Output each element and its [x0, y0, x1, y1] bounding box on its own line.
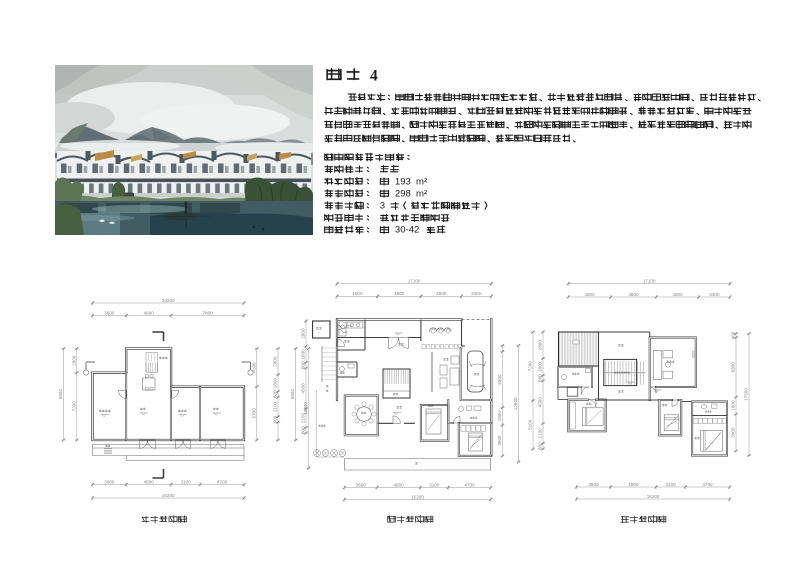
svg-text:600: 600: [273, 415, 278, 423]
svg-text:600: 600: [538, 442, 543, 450]
svg-text:6300: 6300: [497, 374, 502, 385]
svg-text:12800: 12800: [303, 402, 308, 415]
svg-text:9800: 9800: [58, 389, 63, 400]
svg-text:1800: 1800: [273, 378, 278, 389]
svg-text:2100: 2100: [538, 428, 543, 439]
svg-text:4500: 4500: [436, 291, 447, 296]
svg-text:4500: 4500: [352, 291, 363, 296]
svg-text:7800: 7800: [202, 310, 213, 315]
svg-text:4800: 4800: [144, 479, 155, 484]
svg-text:3100: 3100: [665, 482, 676, 487]
svg-text:17100: 17100: [408, 279, 421, 284]
svg-text:3600: 3600: [104, 310, 115, 315]
svg-text:4500: 4500: [301, 383, 306, 394]
svg-text:17100: 17100: [643, 279, 656, 284]
svg-text:1800: 1800: [731, 400, 736, 411]
svg-text:3600: 3600: [104, 479, 115, 484]
svg-text:3600: 3600: [356, 482, 367, 487]
svg-text:2100: 2100: [273, 401, 278, 412]
svg-text:5100: 5100: [528, 419, 533, 430]
svg-text:7200: 7200: [71, 401, 76, 412]
svg-text:17500: 17500: [744, 388, 749, 401]
svg-text:16200: 16200: [647, 494, 660, 499]
svg-text:3600: 3600: [588, 482, 599, 487]
svg-text:600: 600: [301, 426, 306, 434]
svg-text:600: 600: [273, 390, 278, 398]
svg-text:2600: 2600: [71, 355, 76, 366]
svg-text:4500: 4500: [538, 397, 543, 408]
svg-text:1800: 1800: [497, 411, 502, 422]
svg-text:4700: 4700: [217, 479, 228, 484]
svg-text:4500: 4500: [672, 292, 683, 297]
svg-text:3300: 3300: [709, 292, 720, 297]
svg-text:3100: 3100: [429, 482, 440, 487]
svg-text:4700: 4700: [464, 482, 475, 487]
svg-text:2800: 2800: [301, 328, 306, 339]
svg-text:2800: 2800: [273, 356, 278, 367]
svg-text:4800: 4800: [628, 292, 639, 297]
svg-text:4500: 4500: [584, 292, 595, 297]
svg-text:3300: 3300: [471, 291, 482, 296]
svg-text:5700: 5700: [251, 408, 256, 419]
svg-text:4: 4: [370, 68, 378, 85]
svg-text:1800: 1800: [301, 349, 306, 360]
svg-text:m²: m²: [416, 188, 427, 199]
svg-text:4800: 4800: [394, 291, 405, 296]
svg-text:298: 298: [395, 188, 411, 199]
svg-text:2100: 2100: [301, 413, 306, 424]
svg-text:16200: 16200: [162, 298, 175, 303]
svg-text:7200: 7200: [528, 361, 533, 372]
svg-text:3900: 3900: [497, 435, 502, 446]
svg-text:1800: 1800: [538, 361, 543, 372]
svg-text:30-42: 30-42: [395, 225, 419, 236]
svg-text:4700: 4700: [702, 482, 713, 487]
svg-text:16200: 16200: [162, 493, 175, 498]
svg-text:600: 600: [538, 374, 543, 382]
svg-text:m²: m²: [416, 176, 427, 187]
svg-text:193: 193: [395, 176, 411, 187]
svg-text:16200: 16200: [411, 494, 424, 499]
svg-text:12600: 12600: [513, 397, 518, 410]
svg-text:4800: 4800: [144, 310, 155, 315]
svg-text:4800: 4800: [628, 482, 639, 487]
svg-text:3: 3: [380, 201, 385, 212]
svg-text:9800: 9800: [290, 389, 295, 400]
svg-text:4100: 4100: [251, 362, 256, 373]
svg-text:600: 600: [301, 361, 306, 369]
svg-text:400: 400: [731, 331, 736, 339]
svg-text:3900: 3900: [731, 427, 736, 438]
svg-text:6300: 6300: [731, 362, 736, 373]
svg-text:4800: 4800: [393, 482, 404, 487]
svg-text:3100: 3100: [180, 479, 191, 484]
svg-text:2800: 2800: [538, 340, 543, 351]
